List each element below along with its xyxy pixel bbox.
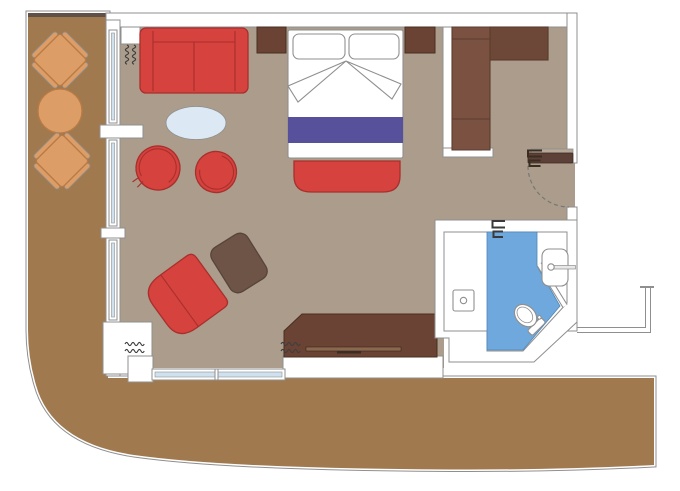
sofa [140, 28, 248, 93]
pillow-right [349, 34, 399, 59]
right-wall-upper [567, 13, 577, 163]
neighbor-wall-inner [577, 287, 648, 330]
washbasin-drain [548, 264, 554, 270]
bottom-wall-under-desk [283, 356, 443, 378]
bathroom [435, 220, 577, 362]
shower-drain [460, 297, 466, 303]
top-wall [106, 13, 577, 27]
neighbor-wall-outer [577, 287, 648, 330]
wardrobe-upper-cabinet [490, 27, 548, 60]
faucet [554, 266, 576, 270]
left-window-upper-glass [112, 143, 115, 223]
desk [284, 314, 437, 357]
bottom-window-mullion [215, 369, 218, 380]
pillow-left [293, 34, 345, 59]
balcony-round-table [38, 89, 82, 133]
wall-stub-mid [100, 125, 143, 138]
closet-wall-vertical [443, 27, 452, 154]
balcony-door-glass [112, 33, 115, 120]
neighbor-wall-outline [577, 287, 654, 330]
foot-bench [294, 161, 400, 192]
coffee-table [166, 107, 226, 140]
bed-runner [288, 117, 403, 143]
desk-handle [306, 347, 401, 351]
side-table [121, 27, 140, 44]
floor-plan-page [0, 0, 680, 491]
left-window-lower-glass [112, 243, 115, 317]
window-pier-left [128, 356, 153, 382]
wall-stub-low [101, 228, 125, 238]
nightstand-right [405, 27, 435, 53]
door-opening-floor [566, 162, 575, 208]
nightstand-left [257, 27, 286, 53]
desk-handle-detail [337, 351, 361, 354]
floor-plan [0, 0, 680, 491]
balcony-top-edge [28, 13, 108, 17]
